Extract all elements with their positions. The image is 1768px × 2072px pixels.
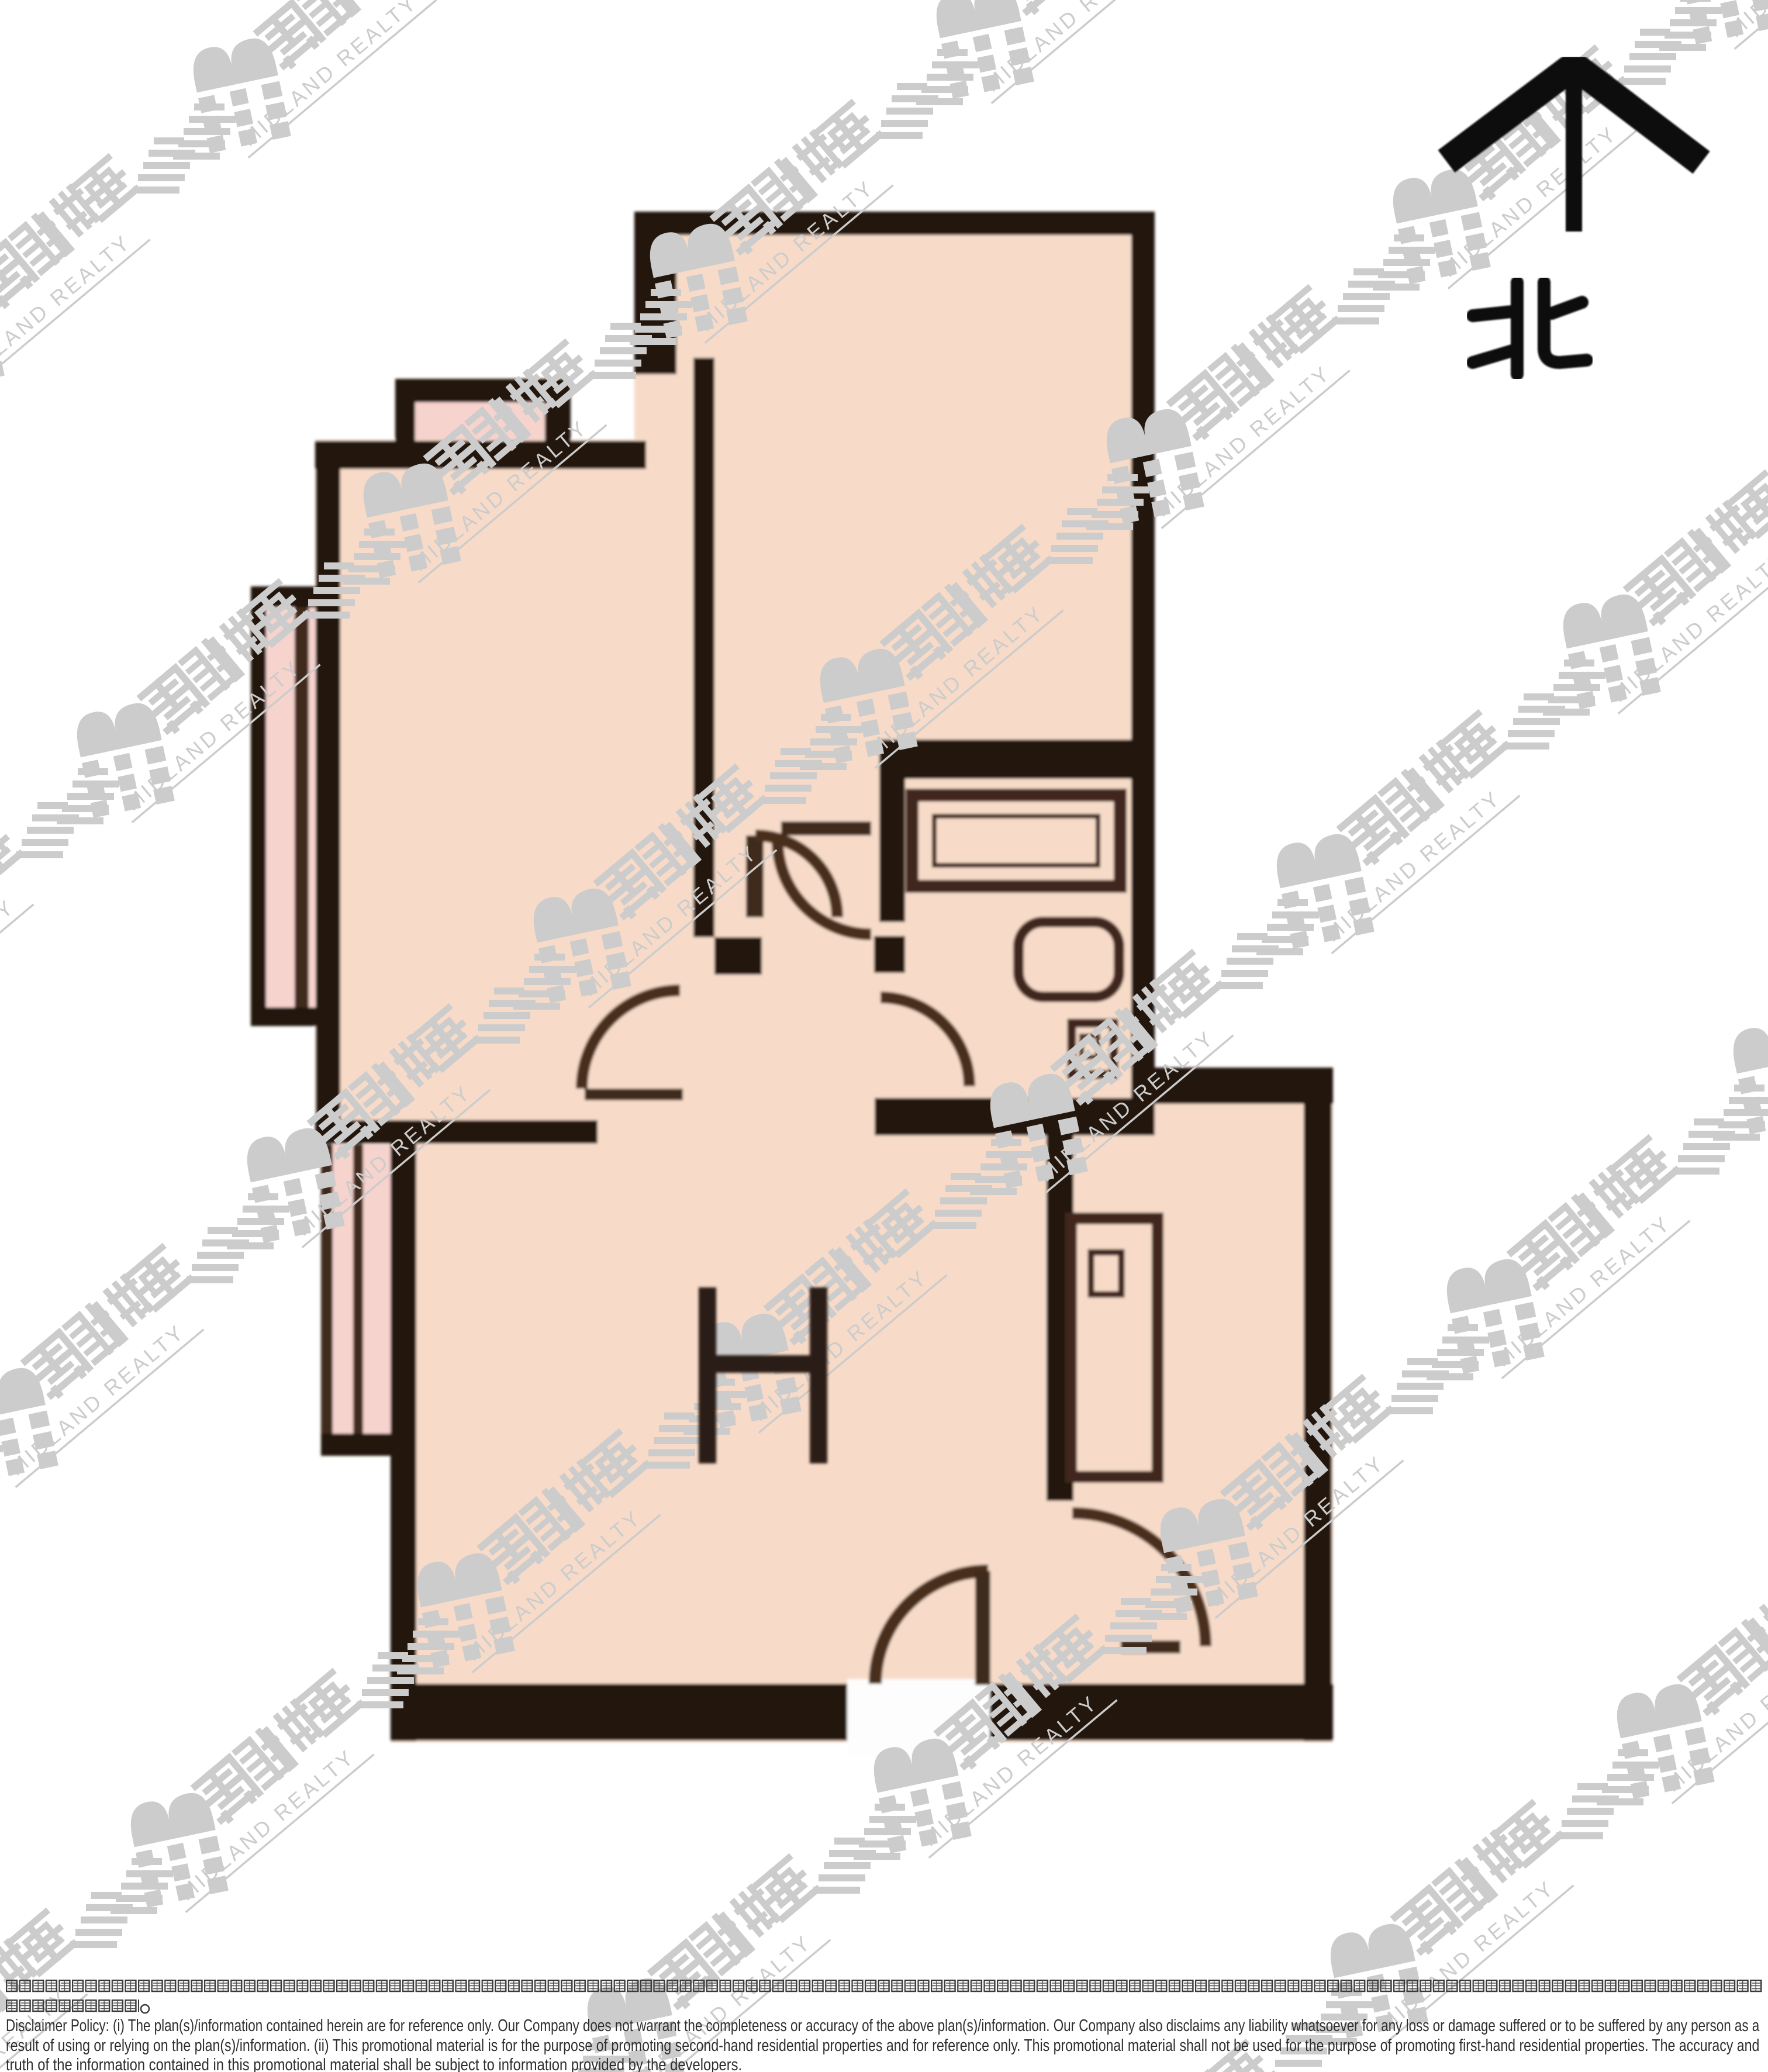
svg-text:result of using or relying on: result of using or relying on the plan(s… bbox=[6, 2037, 1759, 2055]
svg-text:truth of the information conta: truth of the information contained in th… bbox=[6, 2055, 742, 2072]
svg-text:Disclaimer Policy: (i) The pla: Disclaimer Policy: (i) The plan(s)/infor… bbox=[6, 2017, 1760, 2035]
